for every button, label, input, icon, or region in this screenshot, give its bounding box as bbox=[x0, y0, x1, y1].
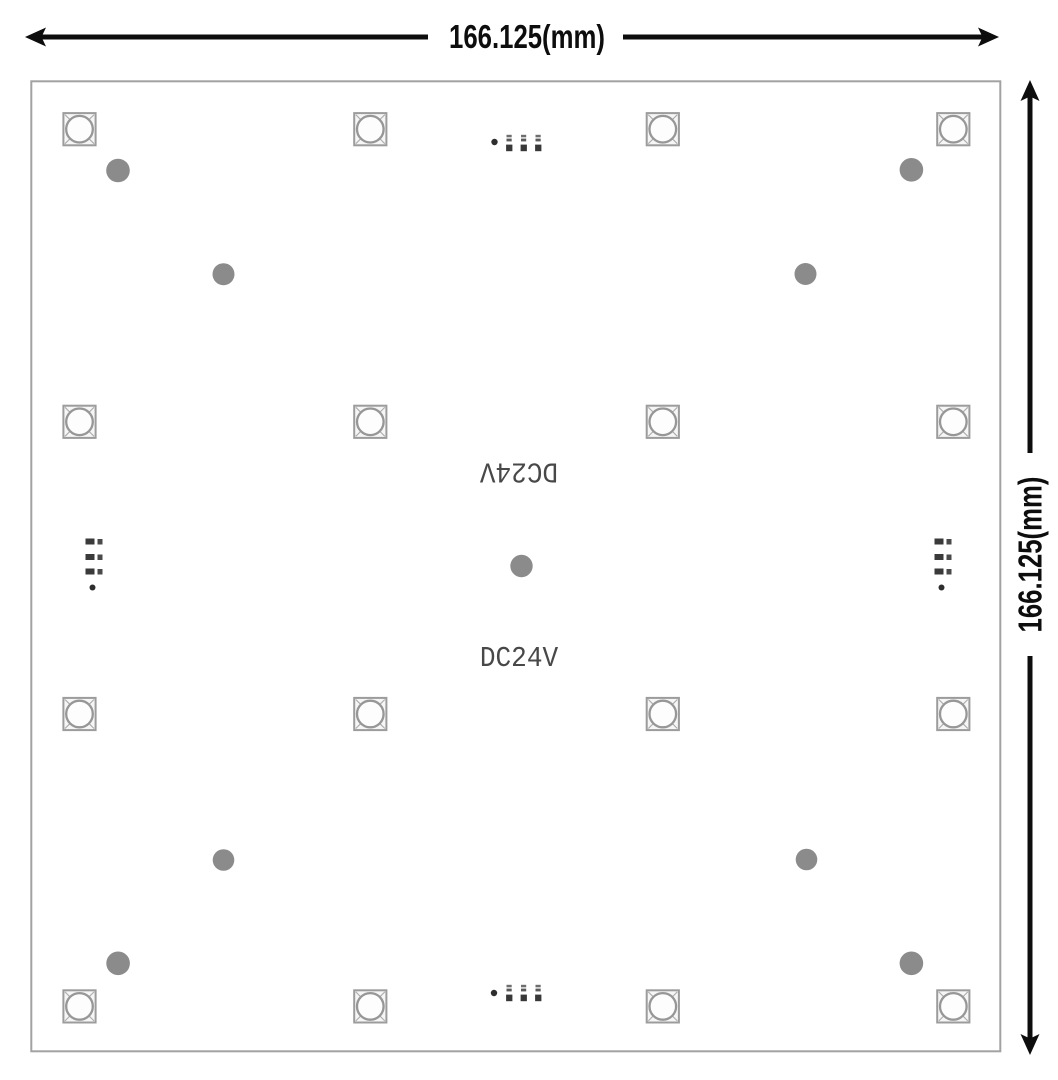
svg-text:DC24V: DC24V bbox=[480, 643, 559, 676]
svg-text:166.125(mm): 166.125(mm) bbox=[1013, 477, 1050, 633]
svg-text:166.125(mm): 166.125(mm) bbox=[449, 19, 605, 56]
svg-text:DC24V: DC24V bbox=[479, 454, 558, 487]
